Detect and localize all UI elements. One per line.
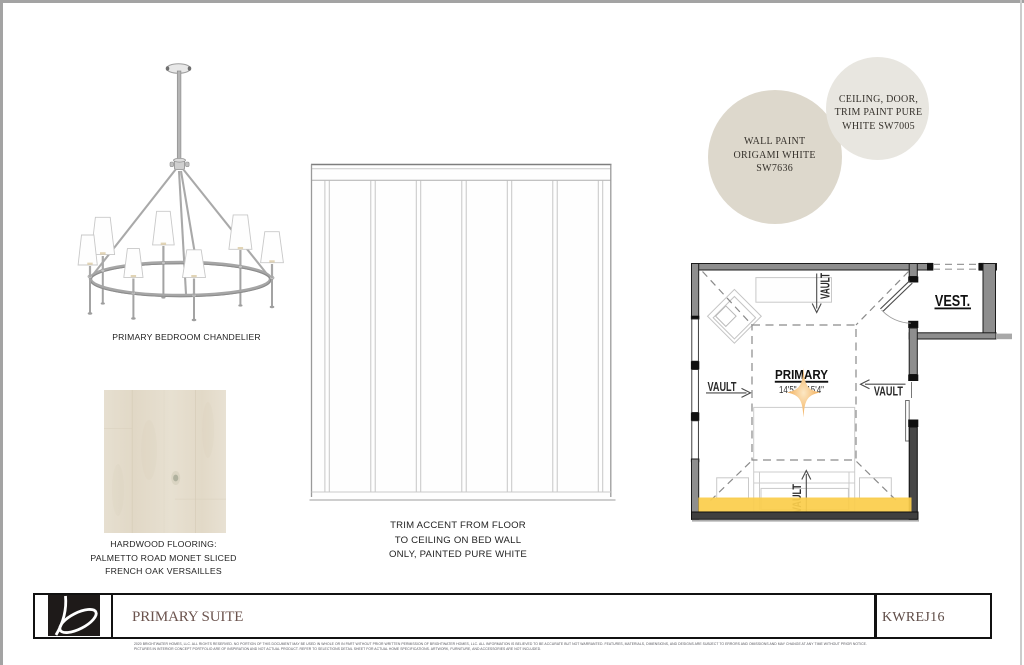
svg-text:PRIMARY: PRIMARY	[775, 368, 829, 382]
svg-text:VAULT: VAULT	[708, 380, 737, 394]
svg-text:VAULT: VAULT	[874, 385, 903, 399]
svg-text:VAULT: VAULT	[819, 273, 833, 299]
